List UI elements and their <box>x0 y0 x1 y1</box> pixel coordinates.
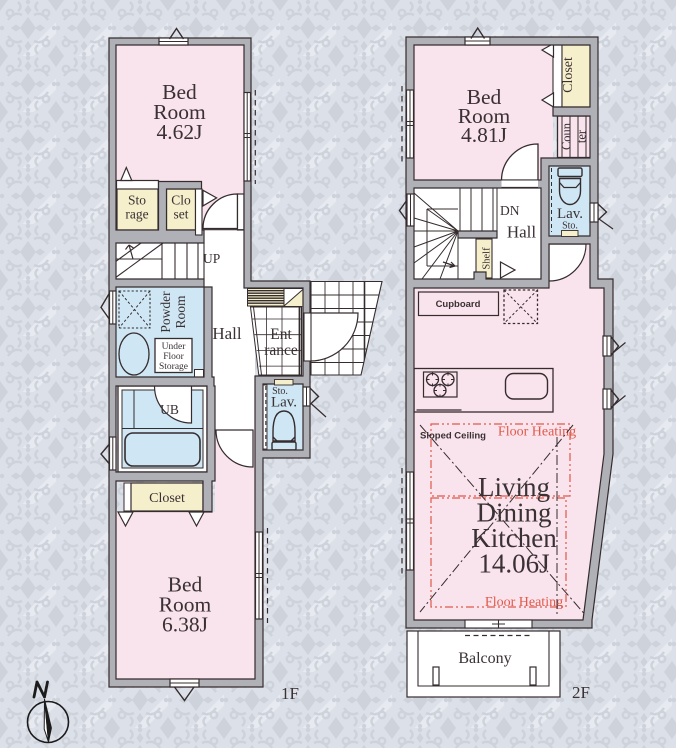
svg-text:Sto.: Sto. <box>562 221 578 232</box>
svg-text:Lav.: Lav. <box>271 395 297 411</box>
svg-text:Sto: Sto <box>128 193 146 208</box>
svg-text:14.06J: 14.06J <box>478 549 549 579</box>
svg-text:Floor: Floor <box>163 352 184 362</box>
svg-text:UP: UP <box>203 251 220 266</box>
svg-text:Floor Heating: Floor Heating <box>498 425 576 440</box>
svg-text:4.81J: 4.81J <box>461 123 507 147</box>
svg-text:Ent: Ent <box>270 326 292 343</box>
svg-text:4.62J: 4.62J <box>157 120 203 144</box>
svg-text:UB: UB <box>160 402 179 417</box>
svg-text:ter: ter <box>575 129 589 143</box>
svg-text:Floor Heating: Floor Heating <box>485 595 563 610</box>
svg-text:Under: Under <box>162 342 187 352</box>
svg-text:6.38J: 6.38J <box>162 613 208 637</box>
svg-text:set: set <box>174 207 189 222</box>
svg-text:Closet: Closet <box>561 57 576 93</box>
svg-text:rage: rage <box>125 207 148 222</box>
svg-text:1F: 1F <box>281 684 299 703</box>
svg-text:Balcony: Balcony <box>458 650 511 667</box>
svg-text:Room: Room <box>173 295 188 329</box>
svg-text:Powder: Powder <box>158 291 173 333</box>
svg-text:Clo: Clo <box>171 193 191 208</box>
svg-text:Hall: Hall <box>507 223 537 242</box>
svg-text:2F: 2F <box>572 683 590 702</box>
svg-text:Cupboard: Cupboard <box>436 299 481 310</box>
svg-text:Closet: Closet <box>149 491 185 506</box>
svg-text:Hall: Hall <box>212 324 242 343</box>
svg-text:Shelf: Shelf <box>482 247 493 270</box>
svg-text:Storage: Storage <box>159 362 188 372</box>
svg-text:DN: DN <box>500 203 520 218</box>
svg-text:Coun: Coun <box>560 122 574 150</box>
svg-text:rance: rance <box>264 342 298 359</box>
svg-text:Sloped Ceiling: Sloped Ceiling <box>420 431 486 442</box>
